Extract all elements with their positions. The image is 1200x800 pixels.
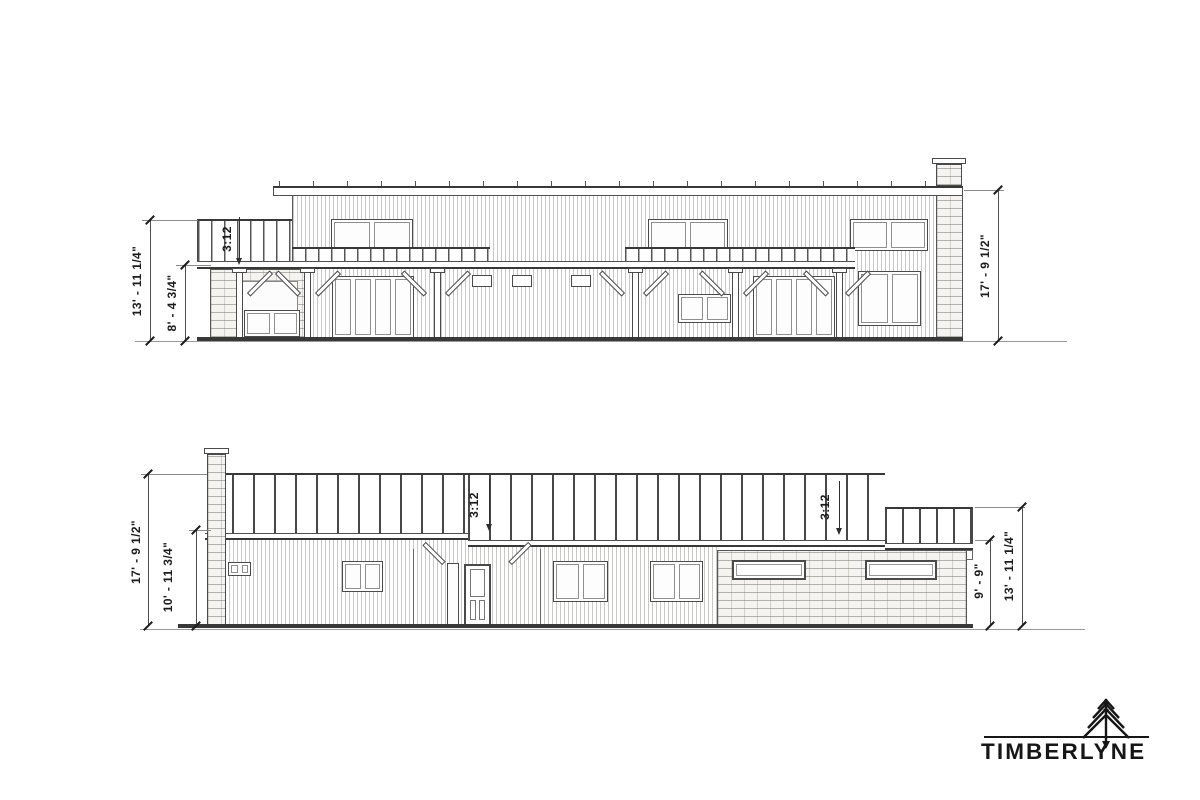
brand-logo: TIMBERLYNE — [0, 0, 1200, 800]
drawing-sheet: 13' - 11 1/4" 8' - 4 3/4" 17' - 9 1/2" 3… — [0, 0, 1200, 800]
brand-wordmark: TIMBERLYNE — [981, 740, 1146, 764]
